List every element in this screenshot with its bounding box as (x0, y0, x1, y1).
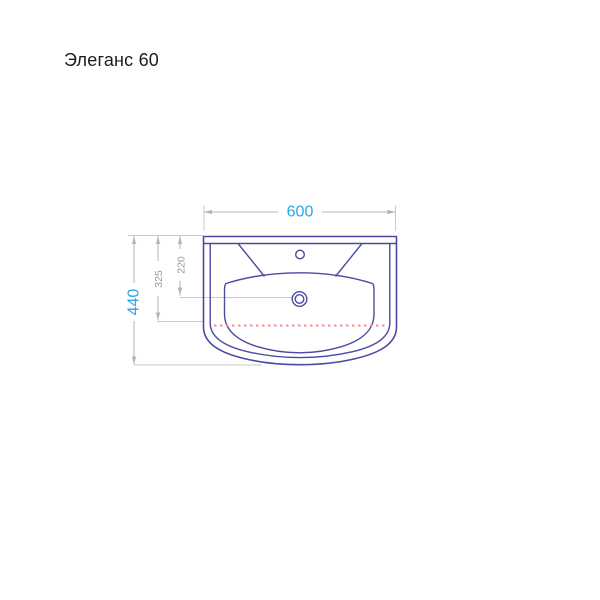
width-dim-label: 600 (287, 204, 314, 221)
faucet-hole (296, 250, 305, 259)
sink-inner-shell (210, 244, 390, 358)
depth-325-dim-label: 325 (153, 270, 165, 288)
depth-325-dimension: 325 (153, 236, 203, 322)
drain-220-arrow-up-icon (178, 236, 182, 244)
width-dimension: 600 (204, 204, 396, 232)
drain-220-arrow-down-icon (178, 288, 182, 296)
sink-outline (204, 237, 397, 365)
height-dim-label: 440 (126, 289, 143, 316)
width-arrow-left-icon (204, 210, 212, 214)
height-arrow-up-icon (132, 236, 136, 244)
drain-220-dim-label: 220 (176, 256, 188, 274)
width-arrow-right-icon (388, 210, 396, 214)
sink-technical-drawing: 600 440 325 220 (0, 0, 600, 600)
sink-outer-shell (204, 237, 397, 365)
drain-220-dimension: 220 (176, 236, 293, 298)
height-dimension: 440 (126, 236, 263, 366)
sink-diagonal-right (336, 244, 363, 277)
depth-325-arrow-down-icon (156, 313, 160, 321)
sink-basin-rim (225, 273, 375, 353)
product-drawing-page: Элеганс 60 600 440 (0, 0, 600, 600)
depth-325-arrow-up-icon (156, 236, 160, 244)
sink-diagonal-left (238, 244, 265, 277)
drain-hole (292, 292, 307, 307)
height-arrow-down-icon (132, 357, 136, 365)
